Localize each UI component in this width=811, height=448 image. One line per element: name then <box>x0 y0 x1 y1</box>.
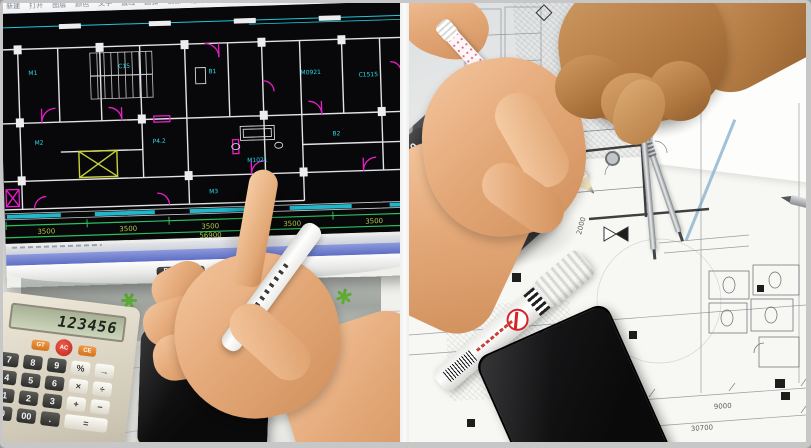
plant-leaf-icon <box>336 292 352 300</box>
cad-menu-item: 颜色 <box>75 3 89 9</box>
calculator-key: 6 <box>44 375 65 391</box>
compass-adjust-wheel <box>605 151 620 166</box>
room-label: M0921 <box>300 69 321 77</box>
cad-menu-item: 镜像 <box>167 3 181 6</box>
dimension-label: 3500 <box>37 227 55 236</box>
dimension-label: 30700 <box>691 423 714 433</box>
cad-floor-plan: M1 C15 B1 M0921 C1515 M2 P4.2 M1021 B2 M… <box>3 3 400 244</box>
calculator-key: → <box>94 363 115 379</box>
cad-menu-item: 圆弧 <box>144 3 158 7</box>
dimension-label: 3500 <box>119 225 137 234</box>
calculator-key-ac: AC <box>54 338 73 357</box>
calculator-key-ce: CE <box>78 345 97 357</box>
calculator-keypad: 7 8 9 % → 4 5 6 × ÷ 1 2 3 + <box>3 352 126 435</box>
dimension-label: 9000 <box>714 402 732 411</box>
room-label: C1515 <box>358 71 378 79</box>
cad-drawing-screen: M1 C15 B1 M0921 C1515 M2 P4.2 M1021 B2 M… <box>3 3 400 244</box>
calculator-display-value: 123456 <box>55 312 119 337</box>
cad-menu-item: 隐藏标注 <box>190 3 218 5</box>
room-label: M2 <box>34 140 43 147</box>
calculator-key: 2 <box>18 390 39 406</box>
cad-menu-item: 打开 <box>29 3 43 11</box>
cad-menu-item: 新建 <box>6 3 20 11</box>
calculator-key: 3 <box>42 393 63 409</box>
calculator-key: ÷ <box>92 381 113 397</box>
calculator-key: . <box>40 411 61 427</box>
calculator-key: 8 <box>23 354 44 370</box>
calculator-key: % <box>70 360 91 376</box>
calculator-key-gt: GT <box>31 339 50 351</box>
photo-collage-frame: 新建 打开 图层 颜色 文字 直线 圆弧 镜像 隐藏标注 标注设置 比例 文字查… <box>0 0 811 448</box>
calculator-key: 9 <box>46 357 67 373</box>
room-label: P4.2 <box>152 138 166 145</box>
plant-leaf-icon <box>121 299 137 302</box>
room-label: B1 <box>208 68 216 75</box>
calculator-key: + <box>66 396 87 412</box>
photo-divider <box>400 3 409 442</box>
room-label: B2 <box>332 130 340 137</box>
cad-menu-item: 直线 <box>121 3 135 8</box>
calculator-key: = <box>64 414 108 433</box>
cad-menu-item: 文字 <box>98 3 112 8</box>
room-label: M1 <box>28 70 37 77</box>
calculator-key: 5 <box>20 372 41 388</box>
cad-menu-item: 标注设置 <box>227 3 255 4</box>
calculator-key: 00 <box>16 408 37 424</box>
command-text-blur <box>12 244 102 249</box>
calculator-key: 1 <box>3 387 15 403</box>
calculator-key: × <box>68 378 89 394</box>
calculator-key: 4 <box>3 369 17 385</box>
cad-menu-item: 图层 <box>52 3 66 10</box>
calculator-key: 7 <box>3 352 19 368</box>
left-photo-cad-workstation: 新建 打开 图层 颜色 文字 直线 圆弧 镜像 隐藏标注 标注设置 比例 文字查… <box>3 3 400 442</box>
dimension-label: 3500 <box>365 217 383 226</box>
calculator-display: 123456 <box>8 302 126 342</box>
room-label: C15 <box>118 63 130 70</box>
calculator-key: − <box>90 399 111 415</box>
calculator-key: 0 <box>3 405 13 421</box>
desk-calculator: 123456 GT AC CE 7 8 9 % → 4 5 6 <box>3 291 141 442</box>
right-photo-blueprint-work: 2000 9000 30700 0 0 7 4 <box>409 3 806 442</box>
